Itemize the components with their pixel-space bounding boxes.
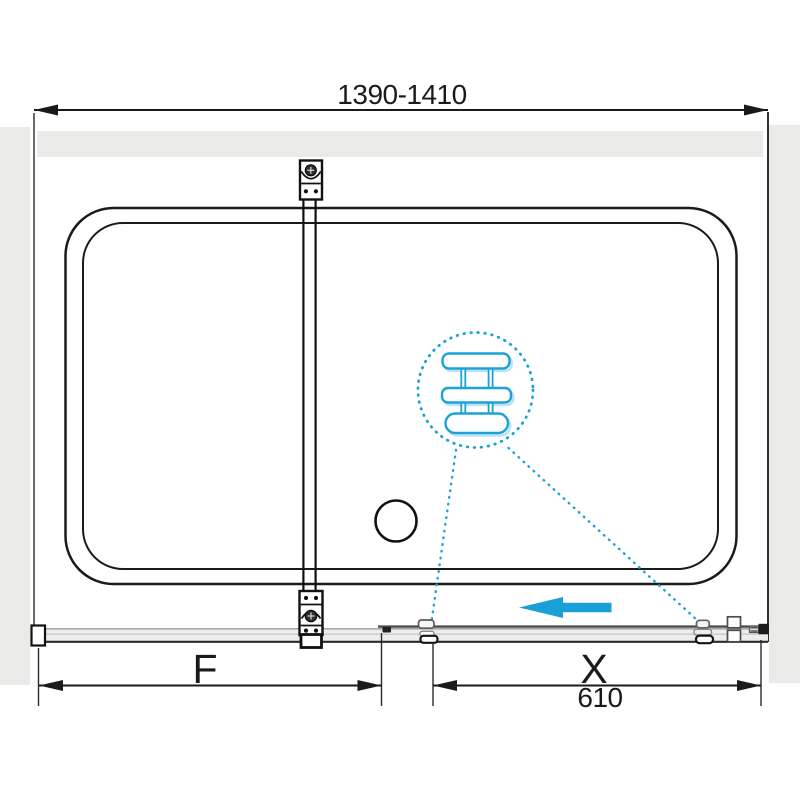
fixed-section-dimension: F	[39, 633, 382, 706]
drain-icon	[376, 501, 417, 542]
fixed-section-label: F	[192, 646, 217, 692]
shower-enclosure-plan: 1390-1410	[0, 0, 800, 800]
technical-drawing: 1390-1410	[0, 0, 800, 800]
right-wall-bracket	[750, 624, 770, 634]
bolt-dot	[314, 596, 318, 600]
track-body	[45, 628, 768, 642]
handle-upper	[697, 620, 710, 628]
top-wall-bracket	[300, 161, 322, 200]
arrow-right-icon	[358, 680, 382, 691]
fixed-panel-edge-clip	[383, 627, 392, 633]
bolt-dot	[314, 189, 318, 193]
towel-bar-post	[489, 403, 493, 415]
bottom-wall-bracket	[300, 591, 323, 648]
arrow-right-icon	[744, 105, 768, 116]
left-wall	[0, 127, 30, 685]
bolt-dot	[304, 189, 308, 193]
sliding-section-value: 610	[577, 682, 622, 713]
arrow-left-icon	[39, 680, 63, 691]
arrow-right-icon	[737, 680, 761, 691]
towel-bar-post	[461, 403, 465, 415]
overall-width-label: 1390-1410	[337, 79, 466, 110]
guide-block-upper	[728, 617, 741, 628]
guide-block-lower	[728, 630, 741, 642]
handle-lower	[696, 636, 713, 644]
bolt-dot	[304, 629, 308, 633]
towel-bar-mid-rail	[442, 388, 511, 403]
bolt-dot	[314, 629, 318, 633]
towel-bar-icon	[442, 354, 511, 434]
top-wall	[37, 131, 763, 157]
towel-bar-grip	[446, 414, 509, 434]
bottom-track	[32, 626, 769, 646]
track-left-end-cap	[32, 626, 46, 646]
roller-upper	[419, 620, 435, 628]
arrow-left-icon	[433, 680, 457, 691]
shower-tray	[66, 208, 737, 584]
towel-bar-post	[461, 369, 465, 389]
detail-zoom-callout	[418, 333, 533, 448]
slide-direction-arrow-icon	[519, 597, 612, 618]
bracket-block	[759, 624, 770, 634]
bolt-dot	[304, 596, 308, 600]
right-wall	[769, 125, 800, 683]
arrow-left-icon	[34, 105, 58, 116]
towel-bar-top-rail	[443, 354, 510, 369]
roller-lower-guide	[421, 636, 438, 643]
door-handle-assembly	[694, 620, 713, 643]
bracket-foot	[301, 635, 322, 648]
sliding-section-dimension: X 610	[433, 640, 761, 713]
towel-bar-post	[489, 369, 493, 389]
handle-mid	[694, 629, 712, 635]
